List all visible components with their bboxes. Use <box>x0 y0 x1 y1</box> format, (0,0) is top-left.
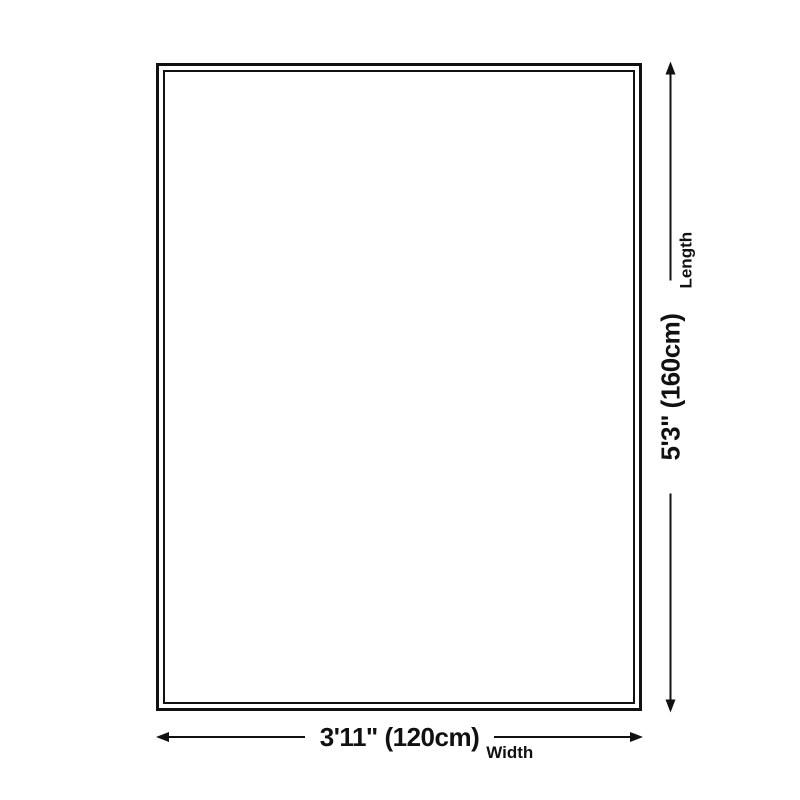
rug-size-diagram: 3'11" (120cm) Width 5'3" (160cm) Length <box>0 0 800 800</box>
width-dimension-line-end: Width <box>494 736 630 738</box>
arrow-right-icon <box>630 732 643 742</box>
arrow-down-icon <box>666 700 676 713</box>
width-dimension: 3'11" (120cm) Width <box>156 730 643 744</box>
length-dimension-line-start <box>670 493 672 699</box>
width-dimension-line-start <box>169 736 305 738</box>
arrow-left-icon <box>156 732 169 742</box>
length-dimension-line-end: Length <box>670 75 672 281</box>
rug-inner-border <box>163 70 635 704</box>
length-label: Length <box>678 232 695 289</box>
rug-outline <box>156 63 642 711</box>
width-label: Width <box>486 744 533 761</box>
length-value: 5'3" (160cm) <box>658 314 684 461</box>
width-value: 3'11" (120cm) <box>320 724 479 750</box>
arrow-up-icon <box>666 62 676 75</box>
length-dimension: 5'3" (160cm) Length <box>664 62 678 713</box>
